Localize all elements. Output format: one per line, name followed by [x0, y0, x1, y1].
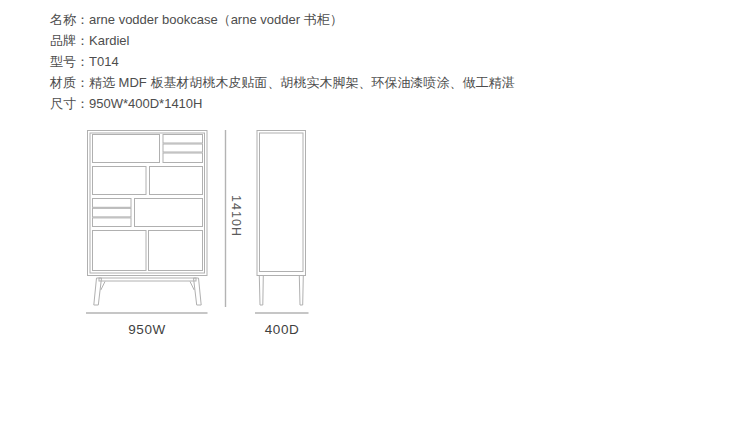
product-spec-page: 名称：arne vodder bookcase（arne vodder 书柜） … [0, 0, 750, 432]
technical-drawing [0, 0, 750, 432]
height-label: 1410H [229, 195, 243, 237]
side-view-drawing [257, 131, 306, 306]
front-width-label: 950W [87, 322, 207, 337]
dimension-lines [86, 130, 309, 313]
front-view-drawing [88, 131, 208, 306]
side-depth-label: 400D [252, 322, 312, 337]
